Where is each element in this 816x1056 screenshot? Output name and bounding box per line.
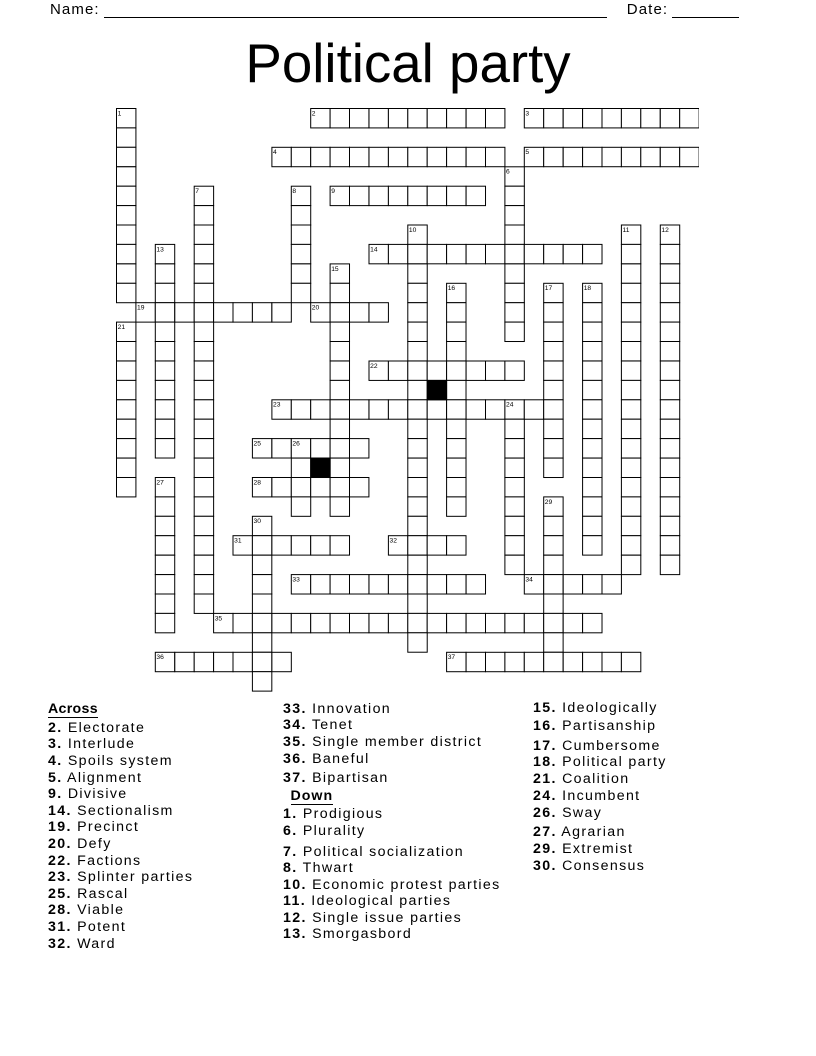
svg-text:22: 22 — [370, 363, 378, 370]
svg-text:13: 13 — [156, 247, 164, 254]
svg-text:2: 2 — [312, 111, 316, 118]
svg-text:3: 3 — [525, 111, 529, 118]
svg-text:19: 19 — [137, 305, 145, 312]
svg-text:32: 32 — [389, 538, 397, 545]
svg-text:14: 14 — [370, 247, 378, 254]
svg-text:30: 30 — [253, 518, 261, 525]
svg-text:7: 7 — [195, 188, 199, 195]
svg-text:28: 28 — [253, 480, 261, 487]
svg-text:17: 17 — [545, 285, 553, 292]
svg-text:25: 25 — [253, 441, 261, 448]
svg-text:5: 5 — [525, 149, 529, 156]
svg-text:1: 1 — [117, 111, 121, 118]
svg-text:31: 31 — [234, 538, 242, 545]
svg-text:12: 12 — [661, 227, 669, 234]
svg-text:36: 36 — [156, 654, 164, 661]
svg-text:8: 8 — [292, 188, 296, 195]
svg-text:18: 18 — [584, 285, 592, 292]
svg-text:9: 9 — [331, 188, 335, 195]
svg-text:29: 29 — [545, 499, 553, 506]
svg-text:21: 21 — [117, 324, 125, 331]
svg-text:24: 24 — [506, 402, 514, 409]
svg-text:16: 16 — [448, 285, 456, 292]
svg-text:23: 23 — [273, 402, 281, 409]
svg-text:34: 34 — [525, 577, 533, 584]
svg-text:35: 35 — [215, 616, 223, 623]
svg-text:33: 33 — [292, 577, 300, 584]
svg-text:27: 27 — [156, 480, 164, 487]
svg-text:37: 37 — [448, 654, 456, 661]
svg-text:20: 20 — [312, 305, 320, 312]
svg-text:15: 15 — [331, 266, 339, 273]
svg-text:26: 26 — [292, 441, 300, 448]
svg-text:6: 6 — [506, 169, 510, 176]
svg-text:11: 11 — [622, 227, 629, 234]
svg-text:10: 10 — [409, 227, 417, 234]
svg-text:4: 4 — [273, 149, 277, 156]
